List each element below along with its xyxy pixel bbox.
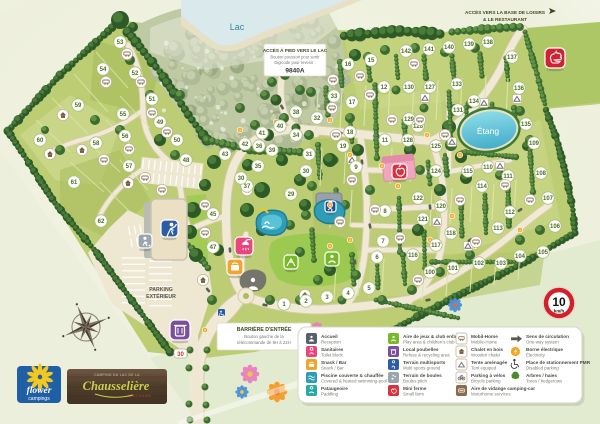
svg-text:114: 114: [477, 184, 487, 190]
svg-text:Place de stationnement PMR: Place de stationnement PMR: [526, 360, 591, 365]
svg-text:Bouton gauche de la: Bouton gauche de la: [244, 334, 284, 339]
svg-text:125: 125: [431, 144, 442, 150]
svg-text:55: 55: [120, 112, 127, 118]
svg-text:CAMPING DU LAC DE LA: CAMPING DU LAC DE LA: [94, 373, 140, 377]
svg-text:57: 57: [126, 164, 133, 170]
svg-text:139: 139: [464, 42, 475, 48]
svg-text:Mobil-Home: Mobil-Home: [471, 334, 498, 339]
svg-text:105: 105: [538, 250, 549, 256]
svg-text:17: 17: [349, 100, 356, 106]
svg-text:Accueil: Accueil: [321, 334, 338, 339]
svg-text:62: 62: [98, 219, 105, 225]
svg-text:12: 12: [381, 85, 388, 91]
svg-text:128: 128: [403, 138, 414, 144]
svg-text:Snack / Bar: Snack / Bar: [321, 365, 344, 370]
svg-text:47: 47: [210, 245, 217, 251]
svg-text:54: 54: [100, 67, 107, 73]
svg-text:30: 30: [303, 169, 310, 175]
svg-text:Lac: Lac: [230, 22, 245, 32]
svg-text:Borne électrique: Borne électrique: [526, 347, 563, 352]
svg-text:100: 100: [425, 270, 436, 276]
svg-text:Play area & children's club: Play area & children's club: [403, 339, 455, 344]
svg-text:136: 136: [514, 86, 525, 92]
svg-text:115: 115: [463, 169, 473, 175]
svg-text:135: 135: [521, 122, 532, 128]
svg-text:60: 60: [37, 138, 44, 144]
svg-text:43: 43: [222, 152, 229, 158]
svg-text:45: 45: [210, 212, 217, 218]
svg-text:Bicycle parking: Bicycle parking: [471, 378, 501, 383]
svg-text:10: 10: [552, 295, 566, 309]
svg-text:Chausselière: Chausselière: [83, 379, 150, 393]
svg-text:Terrain multisports: Terrain multisports: [403, 360, 446, 365]
svg-text:Sens de circulation: Sens de circulation: [526, 334, 569, 339]
svg-text:118: 118: [446, 231, 456, 237]
svg-text:19: 19: [340, 144, 347, 150]
svg-text:BARRIÈRE D'ENTRÉE: BARRIÈRE D'ENTRÉE: [237, 325, 292, 333]
svg-text:32: 32: [314, 116, 321, 122]
svg-text:Small farm: Small farm: [403, 391, 424, 396]
svg-text:Piscine couverte & chauffée: Piscine couverte & chauffée: [321, 373, 384, 378]
svg-text:51: 51: [149, 97, 156, 103]
svg-text:Electricity: Electricity: [526, 352, 546, 357]
svg-text:121: 121: [418, 217, 429, 223]
svg-text:127: 127: [425, 85, 436, 91]
svg-text:Wooden chalet: Wooden chalet: [471, 352, 501, 357]
svg-text:Boules pitch: Boules pitch: [403, 378, 427, 383]
svg-text:141: 141: [424, 47, 435, 53]
svg-text:Covered & heated swimming-pool: Covered & heated swimming-pool: [321, 378, 387, 383]
svg-text:107: 107: [543, 196, 554, 202]
svg-text:9840A: 9840A: [285, 68, 304, 75]
svg-text:42: 42: [242, 142, 249, 148]
svg-text:41: 41: [259, 131, 266, 137]
svg-text:101: 101: [448, 266, 459, 272]
svg-text:Local poubelles: Local poubelles: [403, 347, 439, 352]
svg-text:110: 110: [483, 165, 493, 171]
svg-text:50: 50: [174, 138, 181, 144]
svg-text:Aire de vidange camping-car: Aire de vidange camping-car: [471, 386, 535, 391]
svg-text:Multi sports ground: Multi sports ground: [403, 365, 441, 370]
svg-text:18: 18: [347, 130, 354, 136]
svg-text:Terrain de boules: Terrain de boules: [403, 373, 442, 378]
svg-text:Toilet block: Toilet block: [321, 352, 344, 357]
svg-text:Mini ferme: Mini ferme: [403, 386, 427, 391]
svg-text:131: 131: [453, 108, 464, 114]
svg-text:120: 120: [436, 204, 447, 210]
svg-text:campings: campings: [28, 396, 50, 402]
svg-text:138: 138: [483, 40, 494, 46]
svg-text:122: 122: [413, 196, 424, 202]
svg-text:One-way system: One-way system: [526, 339, 559, 344]
svg-text:Arbres / haies: Arbres / haies: [526, 373, 557, 378]
svg-text:104: 104: [515, 254, 526, 260]
svg-text:16: 16: [345, 62, 352, 68]
svg-text:Snack / Bar: Snack / Bar: [321, 360, 347, 365]
svg-text:49: 49: [157, 120, 164, 126]
svg-text:Tente aménagée: Tente aménagée: [471, 360, 508, 365]
svg-text:Bouton poussoir pour sortir: Bouton poussoir pour sortir: [270, 55, 320, 60]
svg-text:ACCÈS À PIED VERS LE LAC: ACCÈS À PIED VERS LE LAC: [263, 46, 328, 53]
svg-text:40: 40: [277, 124, 284, 130]
svg-text:30: 30: [238, 176, 245, 182]
svg-text:48: 48: [183, 158, 190, 164]
svg-text:117: 117: [431, 243, 441, 249]
svg-text:Trees / hedgerows: Trees / hedgerows: [526, 378, 563, 383]
svg-text:Parking à vélos: Parking à vélos: [471, 373, 506, 378]
svg-text:11: 11: [382, 138, 389, 144]
svg-text:137: 137: [507, 55, 518, 61]
svg-text:35: 35: [255, 164, 262, 170]
svg-text:EXTÉRIEUR: EXTÉRIEUR: [146, 292, 176, 300]
svg-text:58: 58: [93, 141, 100, 147]
svg-text:30: 30: [177, 352, 184, 358]
svg-text:ACCÈS VERS LA BASE DE LOISIRS: ACCÈS VERS LA BASE DE LOISIRS: [465, 8, 545, 15]
svg-text:109: 109: [529, 141, 540, 147]
svg-text:31: 31: [306, 152, 313, 158]
svg-text:Étang: Étang: [477, 126, 499, 136]
svg-text:112: 112: [505, 210, 515, 216]
svg-text:116: 116: [408, 253, 418, 259]
svg-text:130: 130: [404, 85, 415, 91]
svg-text:38: 38: [293, 110, 300, 116]
svg-text:Pataugeoire: Pataugeoire: [321, 386, 348, 391]
svg-text:52: 52: [132, 71, 139, 77]
svg-text:102: 102: [474, 261, 485, 267]
svg-text:134: 134: [469, 99, 480, 105]
svg-text:37: 37: [244, 184, 251, 190]
svg-text:34: 34: [293, 133, 300, 139]
svg-text:Disabled parking: Disabled parking: [526, 365, 559, 370]
svg-text:flower: flower: [27, 386, 52, 396]
svg-text:142: 142: [401, 49, 412, 55]
svg-text:km/h: km/h: [554, 309, 565, 314]
svg-text:29: 29: [288, 192, 295, 198]
svg-text:124: 124: [431, 169, 442, 175]
svg-text:Reception: Reception: [321, 339, 341, 344]
svg-text:Tent equiped: Tent equiped: [471, 365, 497, 370]
svg-text:Motorhome services: Motorhome services: [471, 391, 511, 396]
svg-text:Aire de jeux & club enfants: Aire de jeux & club enfants: [403, 334, 464, 339]
svg-text:télécommande de 8H à 22H: télécommande de 8H à 22H: [237, 340, 291, 345]
svg-text:Paddling: Paddling: [321, 391, 339, 396]
svg-text:& LE RESTAURANT: & LE RESTAURANT: [483, 17, 527, 22]
svg-text:15: 15: [368, 58, 375, 64]
svg-text:133: 133: [452, 82, 463, 88]
svg-text:140: 140: [444, 45, 455, 51]
svg-text:Digicode pour revenir :: Digicode pour revenir :: [274, 60, 315, 65]
svg-text:113: 113: [493, 226, 503, 232]
svg-text:Mobile-Home: Mobile-Home: [471, 339, 498, 344]
svg-text:36: 36: [256, 144, 263, 150]
svg-text:Sanitaires: Sanitaires: [321, 347, 344, 352]
svg-text:33: 33: [331, 94, 338, 100]
svg-text:59: 59: [75, 103, 82, 109]
svg-text:56: 56: [122, 134, 129, 140]
svg-text:108: 108: [536, 171, 547, 177]
svg-text:Refuse & recycling area: Refuse & recycling area: [403, 352, 450, 357]
svg-text:61: 61: [71, 180, 78, 186]
svg-text:103: 103: [496, 261, 507, 267]
svg-text:PARKING: PARKING: [149, 287, 173, 293]
svg-text:53: 53: [117, 40, 124, 46]
svg-text:39: 39: [269, 148, 276, 154]
svg-text:Chalet en bois: Chalet en bois: [471, 347, 503, 352]
svg-text:106: 106: [550, 224, 561, 230]
